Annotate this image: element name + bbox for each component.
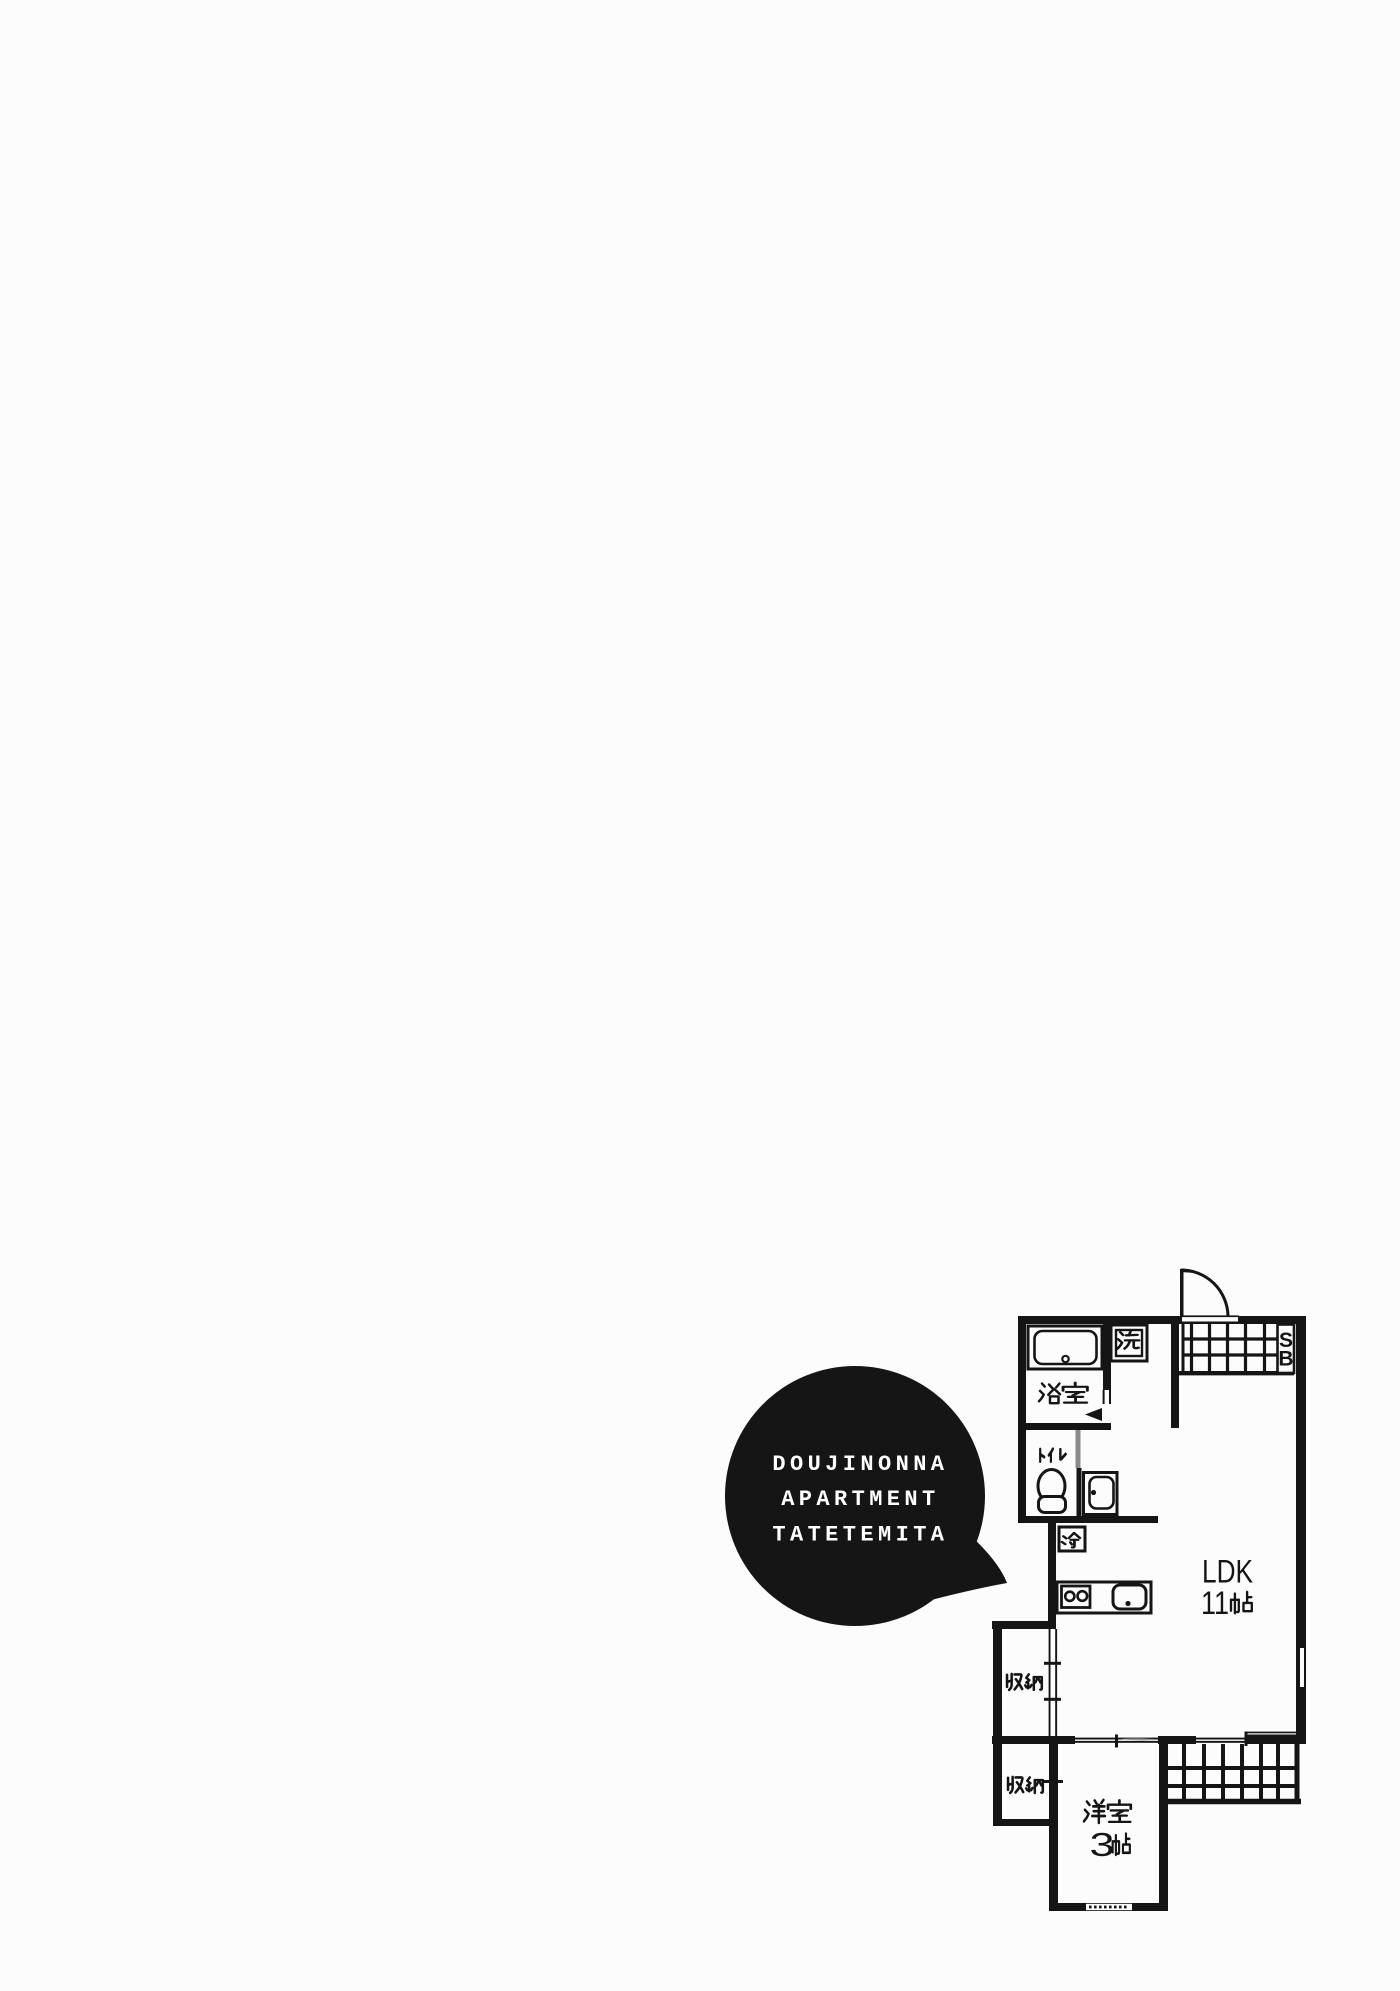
svg-text:DOUJINONNA: DOUJINONNA xyxy=(772,1452,948,1477)
svg-text:APARTMENT: APARTMENT xyxy=(781,1487,939,1512)
svg-text:B: B xyxy=(1278,1348,1293,1371)
svg-text:TATETEMITA: TATETEMITA xyxy=(772,1523,948,1548)
svg-text:11: 11 xyxy=(1201,1585,1229,1621)
svg-text:3: 3 xyxy=(1090,1826,1115,1863)
